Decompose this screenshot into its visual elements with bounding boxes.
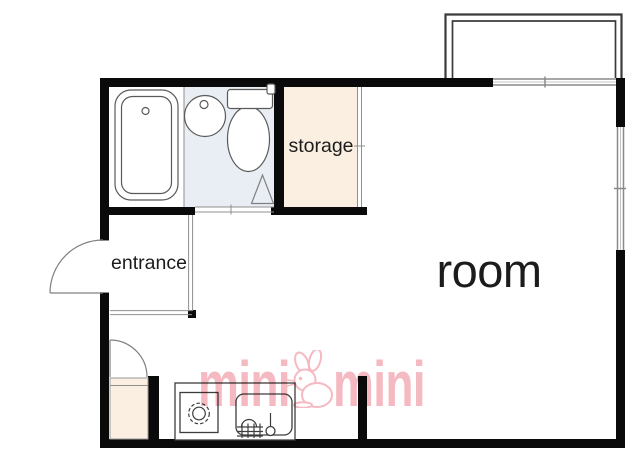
wall-storage-bottom (271, 207, 367, 215)
wall-right-lower (616, 250, 625, 448)
floor-plan: entrance storage room mini mini (0, 0, 640, 462)
wall-post-entrance (188, 310, 196, 318)
wall-left-lower (100, 293, 109, 448)
storage-label: storage (282, 136, 360, 156)
entrance-door (50, 240, 109, 293)
floor-plan-drawing (0, 0, 640, 462)
kitchen-sink-icon (236, 394, 292, 438)
washbasin-icon (185, 96, 226, 137)
wall-left-upper (100, 78, 109, 240)
wall-bathroom-bottom (100, 207, 195, 215)
wall-stub-kitchen (358, 376, 367, 448)
balcony (446, 15, 622, 80)
top-window (493, 77, 616, 88)
right-window (614, 127, 626, 250)
wall-top (100, 78, 493, 87)
closet (110, 340, 148, 439)
entrance-label: entrance (106, 253, 192, 273)
wall-right-upper (616, 78, 625, 127)
kitchen-counter (175, 383, 295, 440)
gas-stove-icon (180, 393, 218, 433)
closet-door (110, 340, 147, 377)
wall-stub-closet (148, 376, 159, 448)
bathtub-icon (115, 87, 184, 207)
closet-floor (110, 378, 148, 439)
room-label: room (419, 249, 559, 293)
